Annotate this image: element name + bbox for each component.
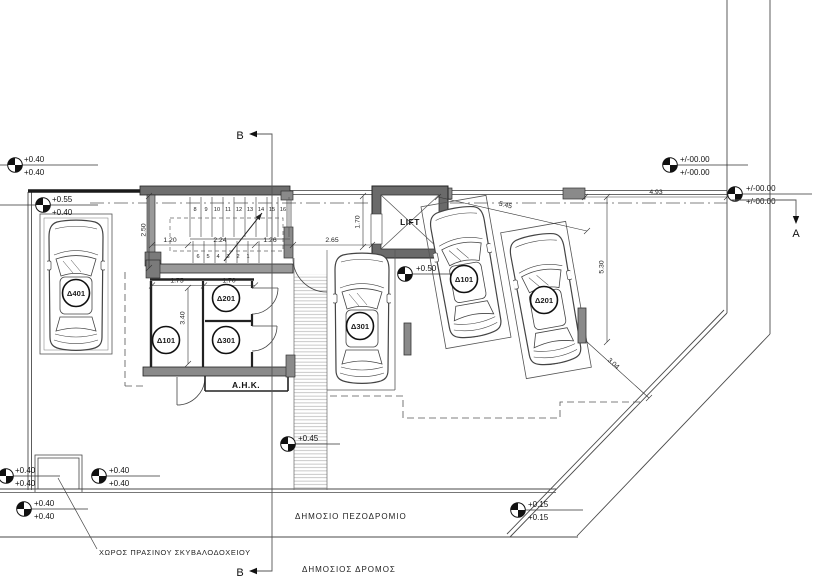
svg-text:Δ201: Δ201	[217, 294, 236, 303]
hatch-walkway	[294, 250, 327, 490]
svg-text:+/-00.00: +/-00.00	[680, 155, 710, 164]
svg-text:+/-00.00: +/-00.00	[680, 168, 710, 177]
svg-text:+0.40: +0.40	[52, 208, 73, 217]
dim-side-length: 5.30	[599, 260, 606, 273]
step-number: 8	[193, 207, 196, 213]
badge-car-right-1: Δ101	[451, 266, 478, 293]
badge-car-left: Δ401	[63, 280, 90, 307]
step-number: 2	[236, 254, 239, 260]
svg-text:+0.40: +0.40	[109, 466, 130, 475]
svg-text:+0.15: +0.15	[528, 500, 549, 509]
step-number: 6	[196, 254, 199, 260]
level-marker: +0.40 +0.40	[0, 155, 98, 177]
ahk-label: A.H.K.	[232, 380, 260, 390]
dim-store-depth: 3.40	[180, 311, 187, 324]
level-marker: +/-00.00 +/-00.00	[663, 155, 748, 177]
site-boundary	[28, 0, 770, 537]
dim-lift-depth: 1.70	[355, 215, 362, 228]
svg-text:+0.50: +0.50	[416, 264, 437, 273]
badge-car-middle: Δ301	[347, 313, 374, 340]
step-number: 10	[214, 207, 220, 213]
step-number: 12	[236, 207, 242, 213]
svg-text:+0.40: +0.40	[34, 512, 55, 521]
svg-text:Δ101: Δ101	[157, 336, 176, 345]
dim-bay-length: 5.45	[498, 201, 513, 211]
section-b-bottom-label: B	[236, 567, 243, 577]
dim-stair-hall-depth: 2.50	[141, 223, 148, 236]
step-number: 13	[247, 207, 253, 213]
svg-text:Δ201: Δ201	[535, 296, 554, 305]
section-a-label: A	[792, 228, 800, 240]
svg-text:+/-00.00: +/-00.00	[746, 197, 776, 206]
step-number: 16	[280, 207, 286, 213]
level-marker: +0.40 +0.40	[92, 466, 160, 488]
level-marker: +0.40 +0.40	[0, 466, 60, 488]
svg-text:+0.15: +0.15	[528, 513, 549, 522]
road-label: ΔΗΜΟΣΙΟΣ ΔΡΟΜΟΣ	[302, 565, 396, 574]
dim-corner: 3.04	[606, 357, 621, 371]
svg-text:+0.45: +0.45	[298, 434, 319, 443]
dim-entry-width: 2.65	[325, 237, 338, 244]
lift-label: LIFT	[400, 217, 420, 227]
step-number: 4	[216, 254, 219, 260]
step-number: 14	[258, 207, 264, 213]
svg-text:+/-00.00: +/-00.00	[746, 184, 776, 193]
dim-landing: 1.26	[263, 237, 276, 244]
step-number: 5	[206, 254, 209, 260]
floor-plan-drawing: 8 9 10 11 12 13 14 15 16 6 5 4 3 2 1 LIF…	[0, 0, 825, 577]
section-line-b: B B	[236, 130, 272, 577]
svg-text:+0.40: +0.40	[24, 155, 45, 164]
svg-text:+0.40: +0.40	[109, 479, 130, 488]
svg-text:+0.55: +0.55	[52, 195, 73, 204]
dim-store1-width: 1.75	[170, 278, 183, 285]
lift-door	[371, 214, 382, 244]
sidewalk-label: ΔΗΜΟΣΙΟ ΠΕΖΟΔΡΟΜΙΟ	[295, 512, 407, 521]
svg-text:Δ301: Δ301	[217, 336, 236, 345]
step-number: 9	[204, 207, 207, 213]
step-number: 11	[225, 207, 231, 213]
step-number: 1	[246, 254, 249, 260]
badge-store-101: Δ101	[153, 327, 180, 354]
bin-area-label: ΧΩΡΟΣ ΠΡΑΣΙΝΟΥ ΣΚΥΒΑΛΟΔΟΧΕΙΟΥ	[99, 548, 251, 557]
badge-store-301: Δ301	[213, 327, 240, 354]
svg-text:Δ101: Δ101	[455, 275, 474, 284]
svg-text:Δ401: Δ401	[67, 289, 86, 298]
svg-text:+0.40: +0.40	[34, 499, 55, 508]
dim-flight-width: 1.20	[163, 237, 176, 244]
svg-text:+0.40: +0.40	[24, 168, 45, 177]
svg-text:Δ301: Δ301	[351, 322, 370, 331]
dim-front-length: 4.93	[649, 189, 662, 196]
badge-store-201: Δ201	[213, 285, 240, 312]
level-marker: +0.40 +0.40	[17, 499, 88, 521]
svg-text:+0.40: +0.40	[15, 466, 36, 475]
badge-car-right-2: Δ201	[531, 287, 558, 314]
section-line-a: A	[730, 200, 800, 240]
dim-store23-width: 1.70	[222, 278, 235, 285]
dim-stair-length: 2.24	[213, 237, 226, 244]
step-number: 3	[226, 254, 229, 260]
floor-plan-sheet: 8 9 10 11 12 13 14 15 16 6 5 4 3 2 1 LIF…	[0, 0, 825, 577]
svg-text:+0.40: +0.40	[15, 479, 36, 488]
section-b-top-label: B	[236, 130, 243, 142]
